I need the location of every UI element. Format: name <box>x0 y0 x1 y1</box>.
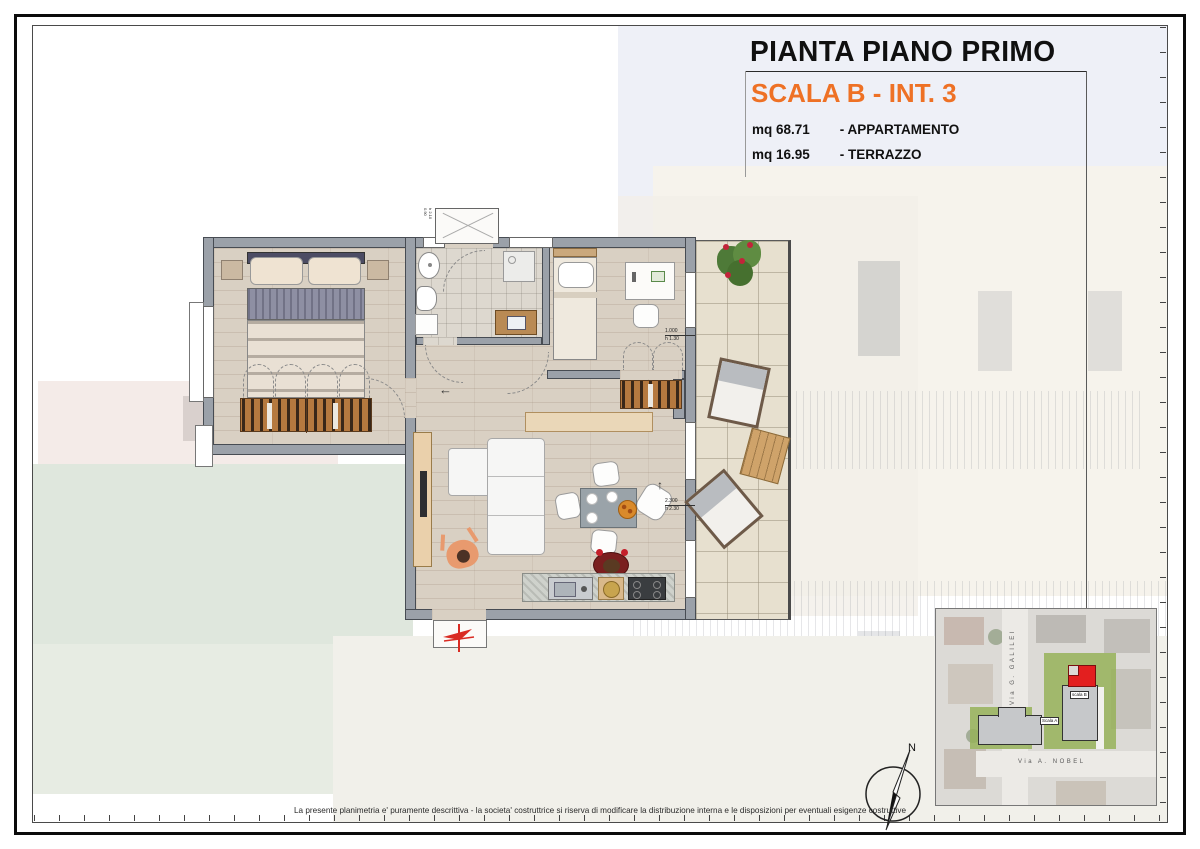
dining-chair <box>591 460 620 487</box>
fruit-bowl-center <box>603 559 620 573</box>
aerial-roof <box>1111 669 1151 729</box>
bathroom-door-gap <box>423 337 457 345</box>
tv-screen <box>420 471 427 517</box>
burner <box>653 591 661 599</box>
plate <box>586 512 598 524</box>
entry-door-height: h 2.10 <box>428 208 432 219</box>
scala-b-tag: scala B <box>1070 691 1089 699</box>
red-flower <box>621 549 628 556</box>
plant-flower <box>739 258 745 264</box>
street-nobel-label: Via A. NOBEL <box>1018 759 1086 765</box>
window-sill-left-lower <box>195 425 213 467</box>
window-sill-left <box>189 302 204 402</box>
single-bed-pillow <box>558 262 594 288</box>
bedroom2-desk <box>625 262 675 300</box>
red-flower <box>596 549 603 556</box>
street-galilei-label: Via G. GALILEI <box>1010 629 1016 705</box>
wall-bedroom-bottom <box>203 444 416 455</box>
dining-chair <box>554 491 582 521</box>
plate <box>586 493 598 505</box>
hallway-wardrobe <box>620 380 682 409</box>
entry-door-gap-bottom <box>432 609 486 620</box>
floor-plan: 0.90 h 2.10 <box>195 210 795 660</box>
bedroom-wardrobe <box>240 398 372 432</box>
wardrobe-door-swing <box>243 364 274 398</box>
left-arrow-icon: ← <box>439 382 452 397</box>
bathroom-vanity <box>495 310 537 335</box>
sofa <box>487 438 545 555</box>
nightstand-right <box>367 260 389 280</box>
area-row-terrace: mq 16.95 - TERRAZZO <box>752 147 922 162</box>
desk-picture <box>651 271 665 282</box>
aerial-roof <box>944 617 984 645</box>
burner <box>653 581 661 589</box>
compass-rose-icon <box>852 742 942 837</box>
building-scala-a <box>978 715 1042 745</box>
entrance-arrow-icon <box>442 623 482 653</box>
kitchen-sink-unit <box>548 577 593 600</box>
window-dimension-size: 2.300 <box>665 498 695 506</box>
lounger-backrest <box>718 361 767 390</box>
highlighted-unit <box>1068 665 1096 687</box>
area-value-terrace: mq 16.95 <box>752 147 836 162</box>
stove <box>628 577 666 600</box>
plan-sheet: PIANTA PIANO PRIMO SCALA B - INT. 3 mq 6… <box>0 0 1200 849</box>
faucet <box>581 586 587 592</box>
burner <box>633 581 641 589</box>
plant-flower <box>725 272 731 278</box>
wardrobe-white-garment <box>648 384 653 407</box>
wall-bath-partition <box>542 237 550 345</box>
plate <box>606 491 618 503</box>
scala-a-tag: Scala A <box>1040 717 1059 725</box>
area-value-apartment: mq 68.71 <box>752 122 836 137</box>
wardrobe-door-swing <box>307 364 338 398</box>
building-scala-a-wing <box>998 707 1026 717</box>
highlighted-unit-notch <box>1069 666 1079 676</box>
sink-drain <box>428 263 432 267</box>
compass: N <box>852 742 942 837</box>
wardrobe-white-garment <box>333 403 338 429</box>
burner <box>633 591 641 599</box>
aerial-roof <box>1056 781 1106 805</box>
window-bedroom2-terrace <box>685 272 696 328</box>
window-dimension-size: 1.000 <box>665 328 695 336</box>
kitchen-bar <box>525 412 653 432</box>
aerial-roof <box>948 664 993 704</box>
toilet <box>416 286 437 311</box>
area-label-terrace: - TERRAZZO <box>840 147 922 162</box>
single-bed-headboard <box>553 248 597 257</box>
dining-table <box>580 488 637 528</box>
ruler-bottom <box>34 815 1166 821</box>
window-dimension-height: h 2.30 <box>665 506 679 512</box>
bedroom2-door-swing <box>653 342 683 370</box>
page-subtitle: SCALA B - INT. 3 <box>751 78 957 109</box>
shower-tray <box>503 251 535 282</box>
plant-foliage <box>727 260 753 286</box>
aerial-roof <box>1104 619 1150 653</box>
wardrobe-divider <box>306 399 307 433</box>
bed-pillow <box>250 257 303 285</box>
bedroom-door-gap <box>405 378 416 418</box>
up-arrow-icon: ↑ <box>657 478 663 492</box>
aerial-roof <box>1036 615 1086 643</box>
kitchen-counter <box>522 573 675 602</box>
entry-door-dimension: 0.90 h 2.10 <box>423 208 432 219</box>
nightstand-left <box>221 260 243 280</box>
window-living-terrace-1 <box>685 422 696 480</box>
bedroom2-door-gap <box>620 370 682 379</box>
tv-console <box>413 432 432 567</box>
window-dimension-1: 1.000 h 1.30 <box>665 328 695 342</box>
entry-door-size: 0.90 <box>423 208 427 219</box>
plant-flower <box>723 244 729 250</box>
area-label-apartment: - APPARTAMENTO <box>840 122 960 137</box>
pizza <box>618 500 637 519</box>
plant-flower <box>747 242 753 248</box>
site-map: scala B Scala A Via G. GALILEI Via A. NO… <box>935 608 1157 806</box>
cutting-board <box>598 577 624 600</box>
compass-north-label: N <box>908 742 916 754</box>
window-bedroom-left <box>203 306 214 398</box>
title-bracket-left <box>745 71 746 177</box>
shower-drain <box>508 256 516 264</box>
bedroom2-chair <box>633 304 659 328</box>
bed-blanket-band <box>247 288 365 320</box>
area-row-apartment: mq 68.71 - APPARTAMENTO <box>752 122 959 137</box>
disclaimer-text: La presente planimetria e' puramente des… <box>33 806 1167 815</box>
window-bedroom2-top <box>509 237 553 248</box>
bed-pillow <box>308 257 361 285</box>
food-bowl <box>603 581 620 598</box>
bathroom-sink <box>418 252 440 279</box>
wardrobe-white-garment <box>267 403 272 429</box>
sink-basin <box>554 582 576 597</box>
ruler-right <box>1160 27 1166 821</box>
terrace-plant <box>713 240 765 292</box>
bedroom2-door-swing <box>623 342 653 370</box>
window-living-terrace-2 <box>685 540 696 598</box>
single-bed <box>553 257 597 360</box>
window-dimension-height: h 1.30 <box>665 336 679 342</box>
terrace-floor <box>696 240 791 620</box>
window-dimension-2: 2.300 h 2.30 <box>665 498 695 512</box>
desk-lamp <box>632 272 636 282</box>
washing-machine <box>415 314 438 335</box>
vanity-basin <box>507 316 526 330</box>
entry-landing-top <box>435 208 499 244</box>
location-leader-line <box>1086 71 1087 663</box>
single-bed-fold <box>554 292 598 298</box>
wardrobe-door-swing <box>275 364 306 398</box>
person-arm <box>440 535 445 551</box>
title-underline <box>745 71 1087 72</box>
page-title: PIANTA PIANO PRIMO <box>750 36 1055 69</box>
